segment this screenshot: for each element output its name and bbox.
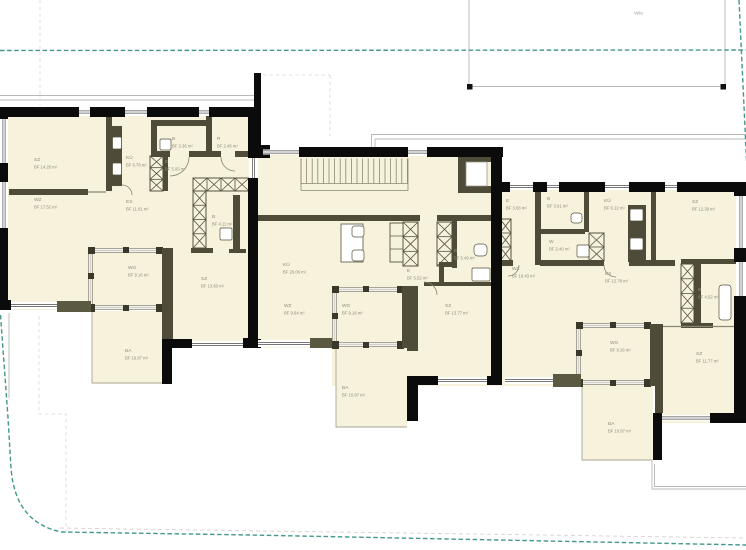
svg-text:BF 11.61 m²: BF 11.61 m² (126, 206, 149, 211)
svg-text:BF 5.49 m²: BF 5.49 m² (454, 255, 475, 260)
svg-text:BF 18.43 m²: BF 18.43 m² (512, 273, 536, 278)
svg-text:BF 17.52 m²: BF 17.52 m² (34, 204, 58, 209)
svg-text:WZ: WZ (512, 266, 520, 272)
svg-text:BF 6.78 m²: BF 6.78 m² (126, 162, 147, 167)
svg-text:BF 14.26 m²: BF 14.26 m² (34, 164, 58, 169)
svg-text:KÜ: KÜ (126, 154, 133, 161)
svg-text:BF 3.68 m²: BF 3.68 m² (506, 205, 527, 210)
svg-text:Velo: Velo (634, 11, 643, 16)
svg-text:BF 5.93 m²: BF 5.93 m² (165, 166, 186, 171)
svg-text:BF 10.87 m²: BF 10.87 m² (608, 428, 632, 433)
svg-text:BF 12.78 m²: BF 12.78 m² (605, 278, 629, 283)
svg-text:BA: BA (125, 348, 132, 354)
svg-text:BF 11.77 m²: BF 11.77 m² (696, 358, 719, 363)
svg-text:SZ: SZ (696, 351, 702, 357)
svg-text:B: B (698, 287, 701, 293)
svg-text:SZ: SZ (201, 276, 207, 282)
svg-text:BF 2.40 m²: BF 2.40 m² (549, 246, 570, 251)
svg-text:BF 9.16 m²: BF 9.16 m² (128, 272, 149, 277)
svg-text:ES: ES (605, 271, 611, 277)
svg-text:BF 3.91 m²: BF 3.91 m² (547, 203, 568, 208)
svg-text:WZ: WZ (284, 303, 292, 309)
svg-text:KÜ: KÜ (283, 261, 290, 268)
svg-text:B: B (172, 136, 175, 142)
svg-text:WG: WG (128, 265, 137, 271)
svg-text:WG: WG (342, 303, 351, 309)
svg-text:BF 9.16 m²: BF 9.16 m² (610, 347, 631, 352)
svg-text:B: B (547, 196, 550, 202)
svg-text:BF 13.77 m²: BF 13.77 m² (445, 310, 469, 315)
svg-text:BA: BA (342, 385, 349, 391)
svg-text:SZ: SZ (34, 157, 40, 163)
svg-text:BF 5.52 m²: BF 5.52 m² (407, 275, 428, 280)
svg-text:BF 9.16 m²: BF 9.16 m² (342, 310, 363, 315)
svg-text:W: W (549, 239, 554, 245)
svg-text:SZ: SZ (692, 199, 698, 205)
svg-text:BF 3.36 m²: BF 3.36 m² (172, 143, 193, 148)
svg-text:BF 13.60 m²: BF 13.60 m² (201, 283, 225, 288)
svg-text:BF 2.48 m²: BF 2.48 m² (217, 143, 238, 148)
svg-text:KÜ: KÜ (604, 197, 611, 204)
svg-text:R: R (217, 136, 221, 142)
svg-text:E: E (506, 198, 509, 204)
svg-text:B: B (212, 214, 215, 220)
svg-text:BF 10.87 m²: BF 10.87 m² (342, 392, 366, 397)
svg-text:SZ: SZ (445, 303, 451, 309)
svg-text:WZ: WZ (34, 197, 42, 203)
svg-text:BF 4.52 m²: BF 4.52 m² (698, 294, 719, 299)
svg-text:E: E (407, 268, 410, 274)
svg-text:BF 10.87 m²: BF 10.87 m² (125, 355, 149, 360)
svg-text:BF 20.06 m²: BF 20.06 m² (283, 269, 307, 274)
svg-text:ES: ES (126, 199, 132, 205)
svg-text:BF 12.39 m²: BF 12.39 m² (692, 206, 716, 211)
svg-text:WG: WG (610, 340, 619, 346)
svg-text:BF 9.64 m²: BF 9.64 m² (284, 310, 305, 315)
svg-text:BA: BA (608, 421, 615, 427)
svg-text:BF 4.11 m²: BF 4.11 m² (212, 221, 233, 226)
svg-text:B: B (454, 248, 457, 254)
svg-text:E: E (165, 159, 168, 165)
svg-text:BF 6.12 m²: BF 6.12 m² (604, 205, 625, 210)
